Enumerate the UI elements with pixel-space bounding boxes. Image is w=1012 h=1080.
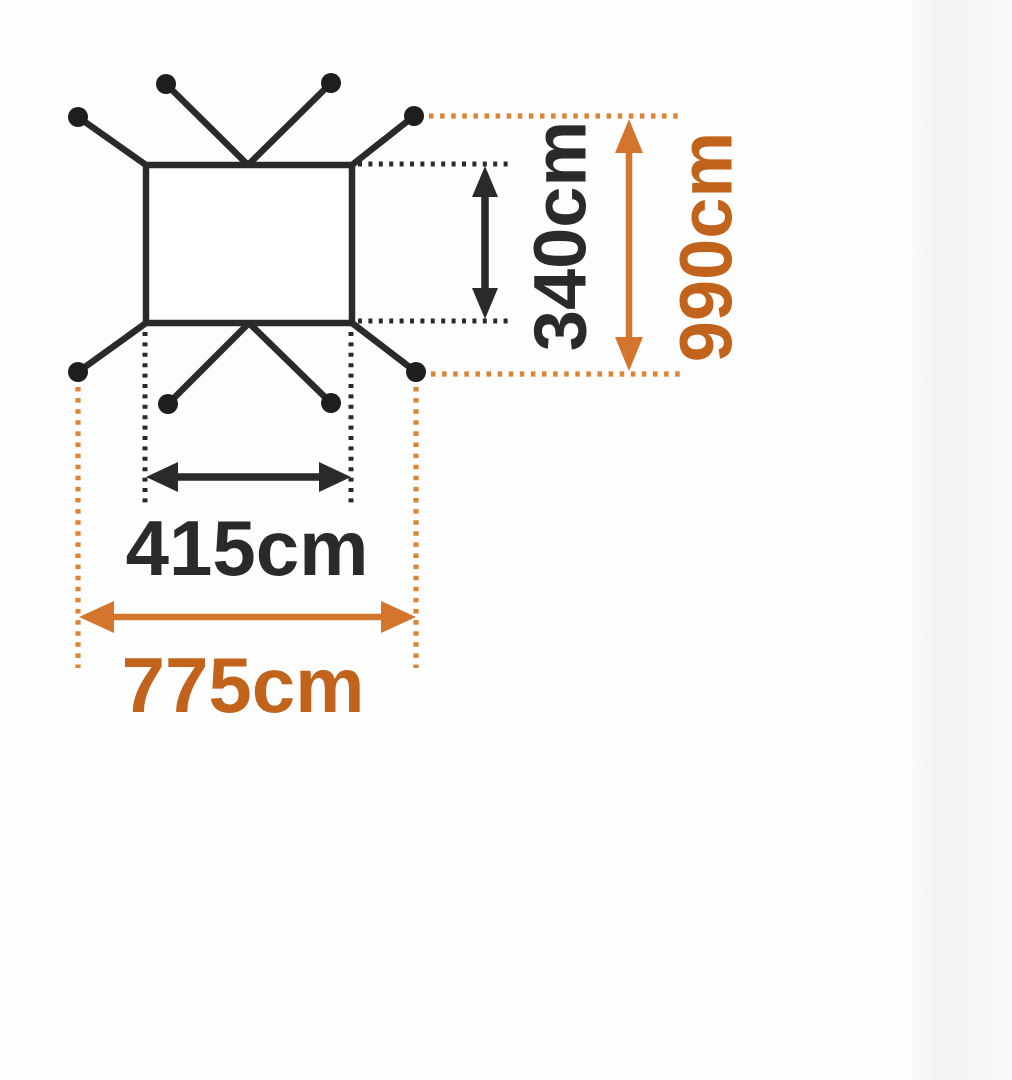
stake-dot: [406, 362, 426, 382]
dim-arrow-outer-depth: [615, 119, 643, 371]
arrow-head-left-icon: [146, 462, 178, 492]
guy-line: [248, 83, 331, 165]
guy-line: [352, 116, 414, 165]
stake-dot: [158, 394, 178, 414]
dim-label-outer-width: 775cm: [122, 641, 365, 729]
tarp-outline: [146, 165, 352, 323]
dim-label-outer-depth: 990cm: [665, 132, 748, 362]
arrow-head-left-icon: [79, 601, 114, 633]
arrow-head-up-icon: [615, 119, 643, 153]
guy-line: [352, 323, 416, 372]
arrow-head-right-icon: [319, 462, 351, 492]
dim-arrow-outer-width: [79, 601, 416, 633]
stake-dot: [156, 74, 176, 94]
guy-line: [249, 323, 331, 403]
dim-arrow-inner-width: [146, 462, 351, 492]
arrow-head-right-icon: [381, 601, 416, 633]
arrow-head-up-icon: [472, 166, 498, 197]
arrow-head-down-icon: [615, 337, 643, 371]
dim-label-inner-depth: 340cm: [519, 121, 602, 351]
guy-line: [168, 323, 249, 404]
dim-arrow-inner-depth: [472, 166, 498, 319]
stake-dot: [68, 107, 88, 127]
guy-line: [78, 117, 146, 165]
stake-dot: [321, 73, 341, 93]
guy-line: [78, 323, 146, 372]
stake-dot: [68, 362, 88, 382]
tarp-dimension-diagram: 340cm 990cm 415cm 775cm: [0, 0, 1012, 1080]
stake-dot: [404, 106, 424, 126]
stake-dot: [321, 393, 341, 413]
dim-label-inner-width: 415cm: [126, 504, 369, 592]
arrow-head-down-icon: [472, 288, 498, 319]
guy-line: [166, 84, 248, 165]
